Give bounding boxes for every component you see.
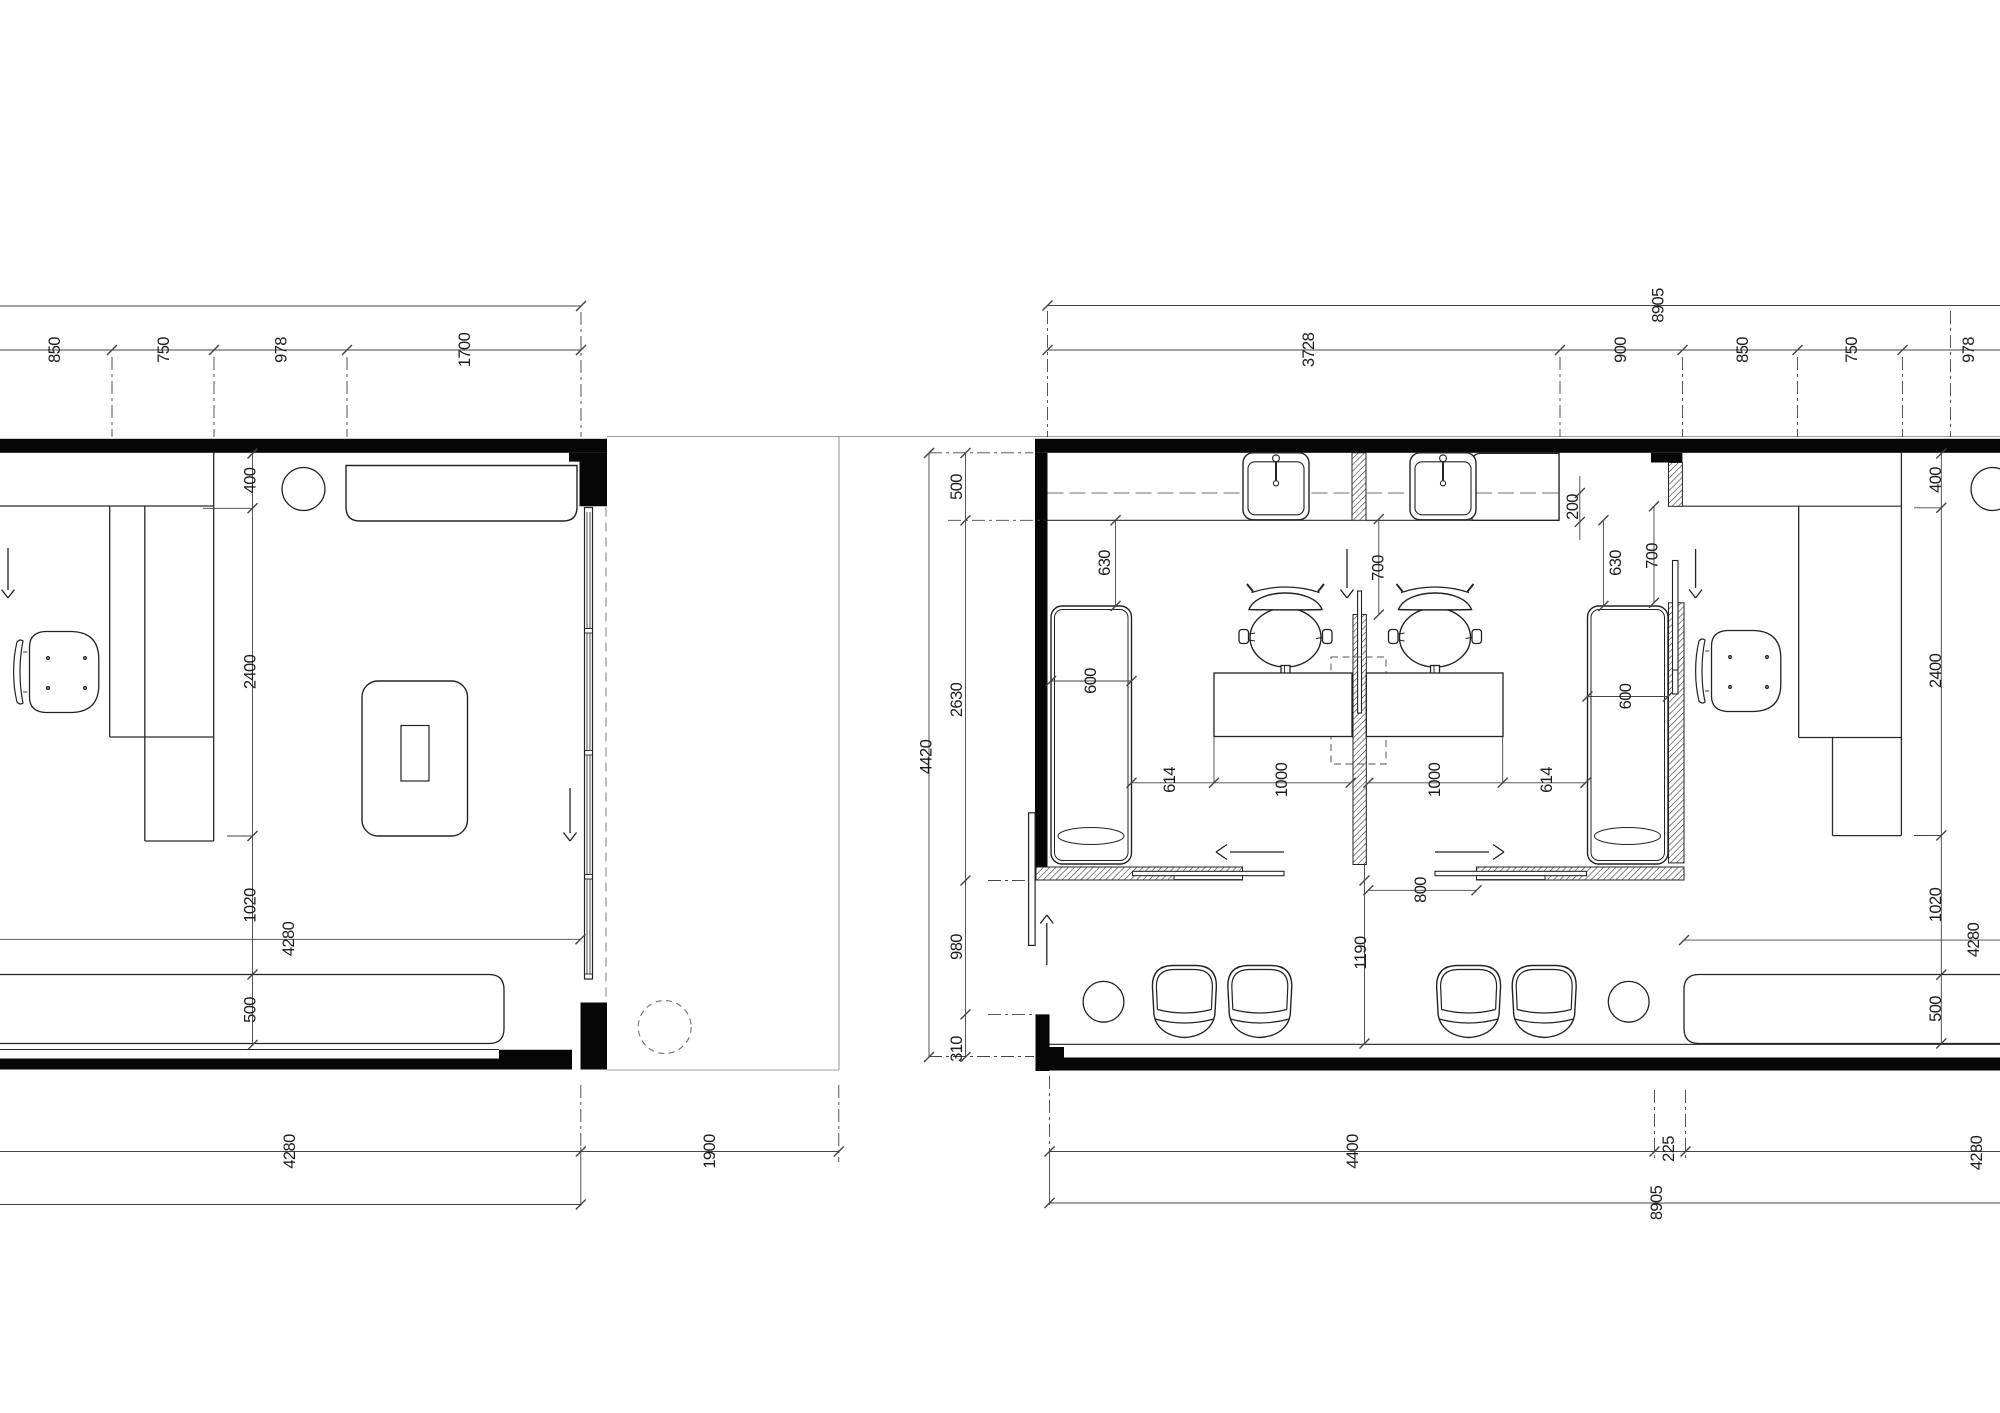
svg-text:4280: 4280 xyxy=(281,1134,299,1169)
svg-text:500: 500 xyxy=(948,474,966,500)
svg-text:1020: 1020 xyxy=(1927,887,1945,922)
svg-text:1700: 1700 xyxy=(456,332,474,367)
svg-text:750: 750 xyxy=(1843,337,1861,363)
svg-text:1000: 1000 xyxy=(1426,762,1444,797)
svg-text:1020: 1020 xyxy=(242,888,260,923)
svg-text:225: 225 xyxy=(1660,1136,1678,1162)
svg-text:310: 310 xyxy=(948,1036,966,1062)
svg-text:850: 850 xyxy=(1734,337,1752,363)
svg-text:400: 400 xyxy=(1927,467,1945,493)
svg-text:614: 614 xyxy=(1538,767,1556,793)
svg-text:4280: 4280 xyxy=(1968,1135,1986,1170)
svg-text:750: 750 xyxy=(155,337,173,363)
svg-text:500: 500 xyxy=(1927,996,1945,1022)
svg-text:630: 630 xyxy=(1607,550,1625,576)
svg-text:850: 850 xyxy=(46,337,64,363)
svg-text:980: 980 xyxy=(948,934,966,960)
svg-text:1000: 1000 xyxy=(1273,762,1291,797)
svg-text:630: 630 xyxy=(1096,550,1114,576)
svg-text:4400: 4400 xyxy=(1344,1134,1362,1169)
svg-text:500: 500 xyxy=(242,997,260,1023)
svg-text:4280: 4280 xyxy=(1965,922,1983,957)
svg-text:4420: 4420 xyxy=(918,739,936,774)
svg-text:1190: 1190 xyxy=(1352,936,1370,970)
svg-text:978: 978 xyxy=(273,337,291,363)
svg-text:800: 800 xyxy=(1412,877,1430,903)
svg-text:2630: 2630 xyxy=(948,682,966,717)
svg-text:600: 600 xyxy=(1617,683,1635,709)
svg-text:2400: 2400 xyxy=(1927,653,1945,688)
svg-text:400: 400 xyxy=(242,467,260,493)
svg-text:700: 700 xyxy=(1370,555,1388,581)
svg-text:4280: 4280 xyxy=(280,921,298,956)
svg-text:600: 600 xyxy=(1082,668,1100,694)
svg-text:3728: 3728 xyxy=(1300,332,1318,367)
svg-text:2400: 2400 xyxy=(242,654,260,689)
svg-text:8905: 8905 xyxy=(1648,1185,1666,1220)
svg-text:900: 900 xyxy=(1612,337,1630,363)
svg-text:1900: 1900 xyxy=(701,1134,719,1169)
svg-text:978: 978 xyxy=(1960,337,1978,363)
svg-text:614: 614 xyxy=(1161,767,1179,793)
svg-text:8905: 8905 xyxy=(1650,288,1668,323)
svg-text:200: 200 xyxy=(1564,494,1582,520)
svg-text:700: 700 xyxy=(1644,543,1662,569)
